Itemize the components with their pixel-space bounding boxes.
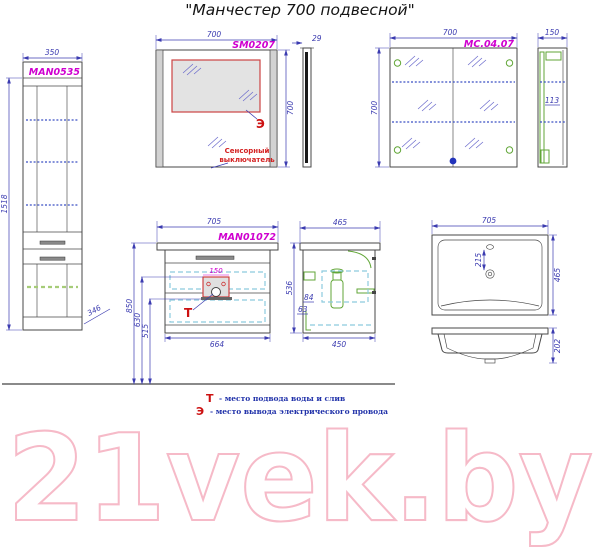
mirror-cabinet-side-outline: [538, 48, 567, 167]
sink-front-height-dim: 202: [553, 339, 562, 354]
mirror-side-view: 29: [292, 34, 322, 167]
mirror-cabinet-height-dim: 700: [370, 101, 379, 116]
vanity-side-countertop: [300, 243, 380, 250]
legend-t-text: - место подвода воды и слив: [219, 394, 345, 403]
mirror-cabinet-side-view: 150 113: [538, 28, 567, 167]
vanity-drain-dim-b: 63: [298, 305, 308, 314]
mirror-height-dim: 700: [286, 101, 295, 116]
vanity-countertop: [157, 243, 278, 250]
technical-drawing-canvas: "Манчестер 700 подвесной" 350 MAN0535 15…: [0, 0, 600, 549]
vanity-front-view: 705 MAN01072 150 Т 664 850 630 515: [125, 217, 278, 384]
sink-front-view: 202: [432, 328, 562, 363]
vanity-water-marker: Т: [184, 306, 193, 320]
vanity-side-bottom-depth-dim: 450: [332, 340, 347, 349]
tall-cabinet-label: MAN0535: [29, 67, 81, 78]
drawing-page: "Манчестер 700 подвесной" 350 MAN0535 15…: [0, 0, 600, 549]
tall-cabinet-height-dim: 1518: [0, 194, 9, 213]
sink-front-flange: [432, 328, 548, 334]
mirror-cabinet-width-dim: 700: [443, 28, 458, 37]
vanity-width-dim: 705: [207, 217, 222, 226]
mirror-backlight-area: [172, 60, 260, 112]
vanity-side-outline: [303, 250, 375, 333]
tall-cabinet-drawer-handle-bottom: [40, 257, 65, 260]
sink-front-drain-stub: [485, 359, 495, 363]
mirror-label: SM0207: [232, 40, 275, 51]
sink-top-view: 705 215 465: [432, 216, 562, 315]
mirror-cabinet-front-view: 700 MC.04.07 700: [370, 28, 517, 167]
mirror-width-dim: 700: [207, 30, 222, 39]
mirror-front-view: 700 SM0207 Э Сенсорный выключатель 700: [156, 30, 295, 168]
tall-cabinet-outline: [23, 62, 82, 330]
mirror-electric-marker: Э: [256, 117, 265, 131]
mirror-switch-note-line1: Сенсорный: [225, 147, 270, 155]
vanity-body-width-dim: 664: [210, 340, 225, 349]
mirror-cabinet-outline: [390, 48, 517, 167]
mirror-cabinet-side-depth-dim: 150: [545, 28, 560, 37]
vanity-height-bottom-dim: 515: [141, 324, 150, 339]
legend-t-symbol: Т: [206, 392, 214, 405]
tall-cabinet-front-view: 350 MAN0535 1518 346: [0, 48, 110, 330]
vanity-height-total-dim: 850: [125, 299, 134, 314]
sink-top-outline: [432, 235, 548, 315]
vanity-drain-hole: [212, 288, 221, 297]
sink-depth-dim: 465: [553, 268, 562, 283]
mirror-thickness-dim: 29: [312, 34, 322, 43]
vanity-label: MAN01072: [218, 232, 276, 243]
sink-faucet-hole: [487, 245, 494, 250]
tall-cabinet-depth-dim: 346: [86, 303, 103, 318]
tall-cabinet-drawer-handle-top: [40, 241, 65, 244]
sink-faucet-to-drain-dim: 215: [474, 253, 483, 268]
vanity-drawer-handle: [196, 256, 234, 259]
watermark-21vek: 21vek.by: [7, 410, 593, 549]
vanity-drain-dim-a: 84: [304, 293, 314, 302]
tall-cabinet-width-dim: 350: [45, 48, 60, 57]
mirror-cabinet-knob: [450, 158, 457, 165]
vanity-side-view: 465 84 63 536 450: [285, 218, 380, 349]
page-title: "Манчестер 700 подвесной": [185, 1, 415, 19]
mirror-cabinet-inner-depth-dim: 113: [545, 96, 560, 105]
vanity-side-top-depth-dim: 465: [333, 218, 348, 227]
sink-width-dim: 705: [482, 216, 497, 225]
vanity-cutout-width-dim: 150: [209, 267, 223, 275]
vanity-side-height-dim: 536: [285, 281, 294, 296]
sink-drain: [486, 270, 494, 278]
